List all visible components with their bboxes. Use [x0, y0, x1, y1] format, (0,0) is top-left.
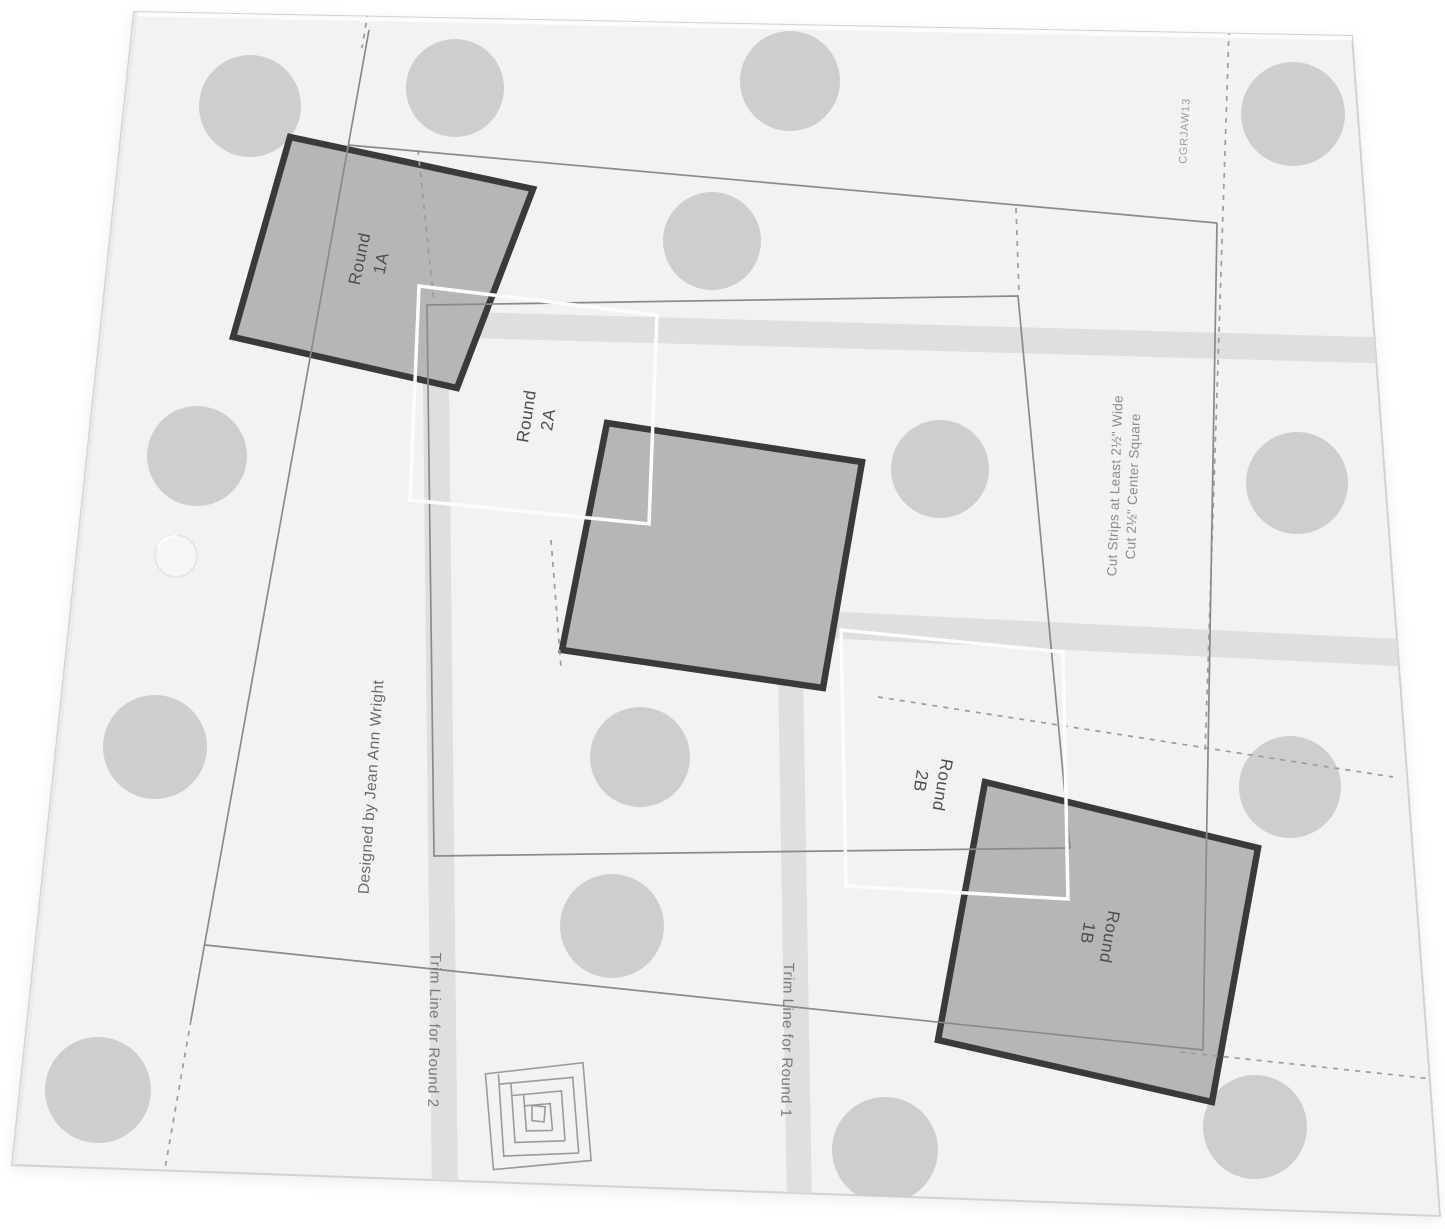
grip-dot	[406, 39, 504, 137]
grip-dot	[147, 406, 247, 506]
product-photo: Round 1A Round 2A Round 2B Round 1B Desi…	[0, 0, 1445, 1229]
label-round-2b: Round 2B	[905, 753, 958, 813]
grip-dot	[1239, 736, 1341, 838]
cutting-instructions: Cut Strips at Least 2½" Wide Cut 2½" Cen…	[1103, 395, 1144, 577]
trim-line-label-round-1: Trim Line for Round 1	[777, 962, 797, 1117]
grip-dot	[740, 31, 840, 131]
grip-dot	[1241, 62, 1345, 166]
grip-dot	[1203, 1075, 1307, 1179]
hanging-hole	[155, 535, 197, 577]
grip-dot	[891, 420, 989, 518]
placement-square-round-2a	[562, 423, 862, 688]
label-round-2a: Round 2A	[512, 388, 564, 447]
label-round-1b: Round 1B	[1072, 905, 1125, 965]
trim-line-label-round-2: Trim Line for Round 2	[424, 952, 444, 1107]
grip-dot	[103, 695, 207, 799]
grip-dot	[560, 874, 664, 978]
grip-dot	[45, 1037, 151, 1143]
ruler-graphics	[0, 0, 1445, 1229]
grip-dot	[832, 1097, 938, 1203]
grip-dot	[1246, 432, 1348, 534]
grip-dot	[663, 192, 761, 290]
grip-dot	[590, 707, 690, 807]
